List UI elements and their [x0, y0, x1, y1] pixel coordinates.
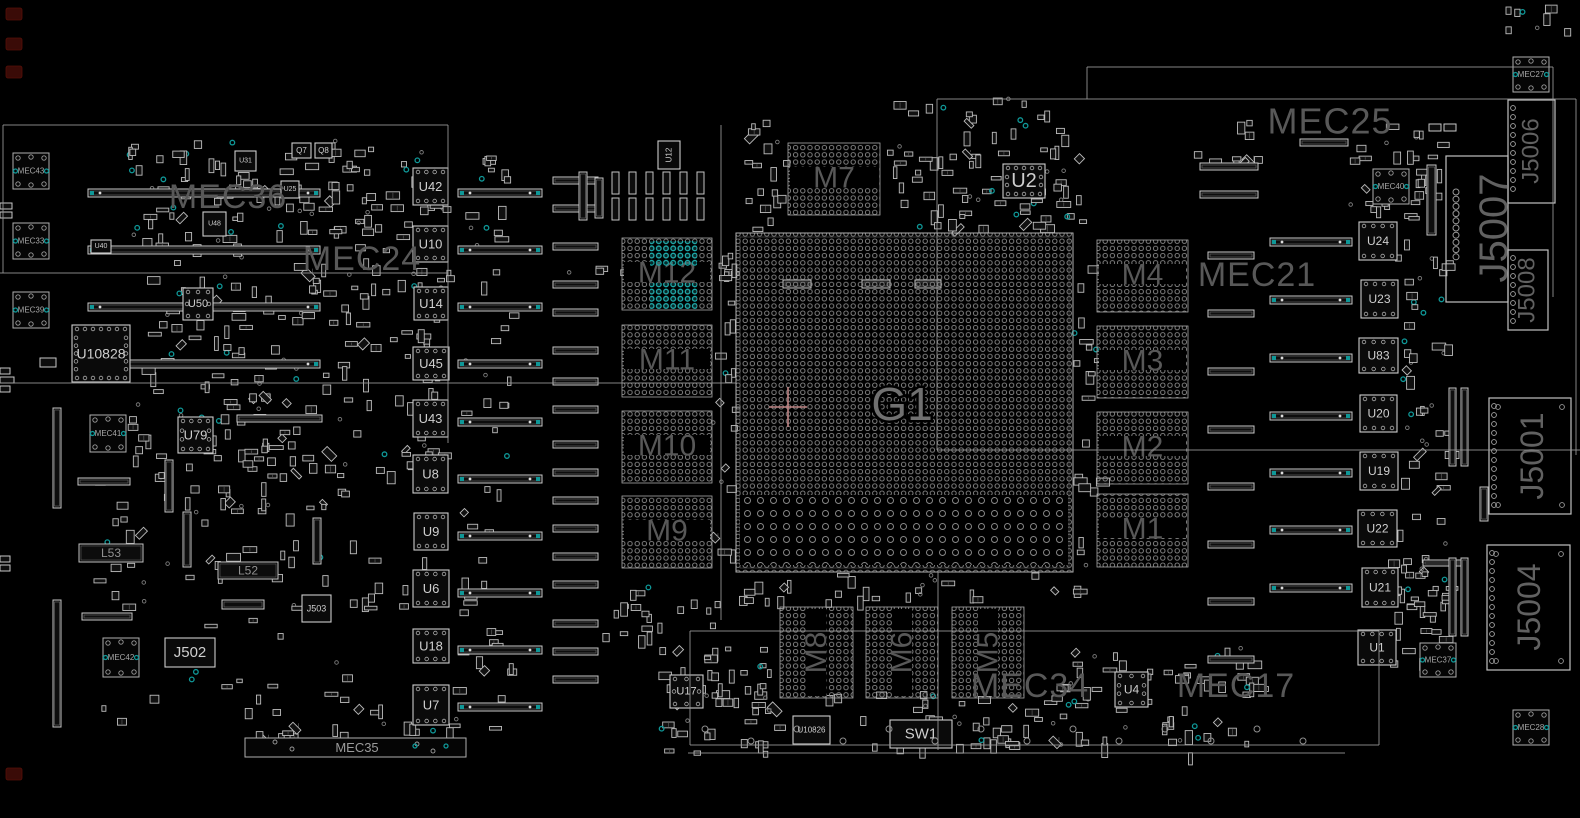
fiducial-MEC33[interactable]: MEC33: [13, 223, 49, 259]
slot-connector-vertical[interactable]: [1461, 388, 1468, 466]
slot-connector[interactable]: [458, 475, 542, 483]
slot-connector[interactable]: [237, 415, 322, 422]
slot-connector[interactable]: [1270, 469, 1352, 477]
slot-connector[interactable]: [1444, 124, 1456, 131]
region-label-MEC17: MEC17: [1177, 667, 1295, 705]
slot-connector[interactable]: [553, 281, 598, 288]
label-U31: U31: [239, 158, 252, 165]
slot-connector[interactable]: [553, 581, 598, 588]
label-J5004: J5004: [1511, 563, 1547, 650]
slot-connector[interactable]: [1208, 656, 1254, 663]
label-MEC41: MEC41: [95, 429, 122, 438]
label-U10828: U10828: [76, 346, 125, 362]
fiducial-MEC28[interactable]: MEC28: [1513, 710, 1549, 745]
slot-connector-vertical[interactable]: [1449, 558, 1456, 636]
label-U12: U12: [665, 147, 674, 162]
label-MEC39: MEC39: [18, 306, 45, 315]
bga-M3[interactable]: M3: [1097, 326, 1188, 398]
label-J5006: J5006: [1518, 118, 1545, 183]
slot-connector[interactable]: [458, 246, 542, 254]
label-M1: M1: [1122, 513, 1164, 546]
slot-connector[interactable]: [553, 620, 598, 627]
slot-connector[interactable]: [1208, 426, 1254, 433]
component-Q8[interactable]: Q8: [315, 143, 332, 158]
fiducial-MEC43[interactable]: MEC43: [13, 153, 49, 189]
slot-connector-vertical[interactable]: [612, 172, 619, 194]
slot-connector[interactable]: [458, 303, 542, 311]
label-M2: M2: [1122, 431, 1164, 464]
slot-connector[interactable]: [1208, 483, 1254, 490]
slot-connector[interactable]: [553, 309, 598, 316]
component-U45[interactable]: U45: [413, 347, 449, 380]
label-M7: M7: [813, 162, 855, 195]
bga-G1[interactable]: G1: [736, 233, 1073, 572]
slot-connector[interactable]: [458, 532, 542, 540]
component-U9[interactable]: U9: [414, 513, 448, 550]
label-U10: U10: [419, 237, 443, 252]
label-MEC40: MEC40: [1378, 182, 1405, 191]
region-label-MEC34: MEC34: [971, 667, 1089, 705]
label-J5007: J5007: [1472, 174, 1516, 283]
label-J502: J502: [174, 644, 207, 661]
corner-mark-icon: [6, 768, 22, 780]
slot-connector-vertical[interactable]: [680, 172, 687, 194]
label-Q7: Q7: [296, 146, 307, 155]
component-U2[interactable]: U2: [1003, 164, 1045, 198]
component-U1[interactable]: U1: [1358, 630, 1396, 665]
region-label-MEC25: MEC25: [1267, 101, 1392, 142]
slot-connector[interactable]: [1200, 163, 1258, 170]
label-M4: M4: [1122, 259, 1164, 292]
slot-connector[interactable]: [0, 203, 12, 209]
component-U18[interactable]: U18: [413, 629, 449, 663]
slot-connector[interactable]: [553, 441, 598, 448]
bga-M9[interactable]: M9: [622, 496, 712, 568]
board-drawing: M12M11M10M9M7M4M3M2M1M8M6M5G1U42U10U14U4…: [0, 0, 1580, 818]
slot-connector[interactable]: [458, 646, 542, 654]
component-U79[interactable]: U79: [178, 417, 213, 453]
fiducial-MEC40[interactable]: MEC40: [1373, 169, 1409, 204]
label-U40: U40: [95, 243, 108, 250]
component-U23[interactable]: U23: [1361, 280, 1398, 318]
label-U20: U20: [1367, 407, 1389, 421]
label-MEC35: MEC35: [335, 740, 378, 755]
label-G1: G1: [871, 378, 932, 430]
slot-connector[interactable]: [1270, 354, 1352, 362]
slot-connector[interactable]: [0, 368, 10, 374]
label-L53: L53: [101, 546, 121, 560]
slot-connector-vertical[interactable]: [53, 600, 61, 727]
fiducial-MEC41[interactable]: MEC41: [90, 415, 126, 452]
slot-connector-vertical[interactable]: [1461, 558, 1468, 636]
slot-connector[interactable]: [458, 589, 542, 597]
label-U48: U48: [208, 221, 221, 228]
slot-connector[interactable]: [0, 212, 12, 218]
label-U14: U14: [419, 296, 443, 311]
slot-connector[interactable]: [553, 243, 598, 250]
slot-connector[interactable]: [0, 556, 10, 562]
component-U17[interactable]: U17: [670, 675, 703, 708]
slot-connector[interactable]: [553, 347, 598, 354]
fiducial-MEC39[interactable]: MEC39: [13, 292, 49, 328]
label-U17: U17: [676, 686, 696, 698]
slot-connector[interactable]: [1429, 124, 1441, 131]
slot-connector[interactable]: [82, 613, 132, 620]
component-U14[interactable]: U14: [414, 287, 448, 320]
label-M8: M8: [800, 632, 833, 674]
label-M10: M10: [638, 430, 696, 463]
label-U83: U83: [1367, 349, 1389, 363]
slot-connector[interactable]: [222, 600, 264, 609]
slot-connector[interactable]: [553, 406, 598, 413]
label-Q8: Q8: [318, 146, 329, 155]
bga-M4[interactable]: M4: [1097, 240, 1188, 312]
slot-connector-vertical[interactable]: [629, 198, 636, 220]
label-MEC42: MEC42: [108, 653, 135, 662]
slot-connector[interactable]: [1270, 412, 1352, 420]
slot-connector-vertical[interactable]: [579, 172, 587, 220]
region-label-MEC24: MEC24: [303, 240, 421, 278]
slot-connector[interactable]: [553, 525, 598, 532]
slot-connector-vertical[interactable]: [629, 172, 636, 194]
component-L53[interactable]: L53: [79, 544, 143, 562]
label-U1: U1: [1369, 641, 1385, 655]
label-U24: U24: [1367, 234, 1389, 248]
m12-highlight-region: [650, 283, 697, 309]
label-U45: U45: [419, 356, 443, 371]
fiducial-MEC37[interactable]: MEC37: [1420, 643, 1456, 677]
bga-M2[interactable]: M2: [1097, 412, 1188, 484]
component-U6[interactable]: U6: [413, 570, 449, 607]
slot-connector-vertical[interactable]: [183, 512, 191, 567]
slot-connector[interactable]: [553, 497, 598, 504]
label-U43: U43: [419, 411, 443, 426]
slot-connector[interactable]: [458, 360, 542, 368]
label-U23: U23: [1368, 292, 1390, 306]
slot-connector-vertical[interactable]: [1449, 388, 1456, 466]
slot-connector[interactable]: [1208, 310, 1254, 317]
component-U22[interactable]: U22: [1358, 510, 1397, 547]
component-U31[interactable]: U31: [235, 151, 256, 171]
region-label-MEC36: MEC36: [169, 178, 287, 216]
label-MEC37: MEC37: [1425, 656, 1452, 665]
bga-M7[interactable]: M7: [788, 143, 880, 215]
label-MEC43: MEC43: [18, 167, 45, 176]
label-U42: U42: [419, 179, 443, 194]
bga-M8[interactable]: M8: [780, 607, 853, 698]
slot-connector[interactable]: [1208, 541, 1254, 548]
label-M11: M11: [639, 344, 695, 377]
slot-connector[interactable]: [458, 418, 542, 426]
label-J5001: J5001: [1514, 412, 1550, 499]
label-U4: U4: [1124, 683, 1140, 697]
label-U18: U18: [419, 639, 443, 654]
component-U40[interactable]: U40: [91, 240, 111, 253]
corner-mark-icon: [6, 38, 22, 50]
label-U22: U22: [1366, 522, 1388, 536]
label-M6: M6: [886, 632, 919, 674]
slot-connector-vertical[interactable]: [646, 172, 653, 194]
boardview-canvas[interactable]: M12M11M10M9M7M4M3M2M1M8M6M5G1U42U10U14U4…: [0, 0, 1580, 818]
slot-connector[interactable]: [553, 553, 598, 560]
label-U79: U79: [184, 428, 208, 443]
component-U21[interactable]: U21: [1362, 568, 1398, 607]
component-Q7[interactable]: Q7: [292, 143, 311, 158]
slot-connector[interactable]: [458, 703, 542, 711]
label-MEC28: MEC28: [1518, 723, 1545, 732]
label-U21: U21: [1369, 581, 1391, 595]
component-U10826[interactable]: U10826: [793, 716, 830, 744]
slot-connector[interactable]: [1200, 191, 1258, 198]
slot-connector-vertical[interactable]: [697, 198, 704, 220]
label-U50: U50: [188, 298, 208, 310]
slot-connector-vertical[interactable]: [313, 518, 321, 564]
bga-M11[interactable]: M11: [622, 325, 712, 397]
slot-connector[interactable]: [553, 205, 598, 212]
label-MEC33: MEC33: [18, 237, 45, 246]
slot-connector[interactable]: [88, 246, 320, 254]
slot-connector[interactable]: [1208, 598, 1254, 605]
slot-connector-vertical[interactable]: [663, 198, 670, 220]
bga-M10[interactable]: M10: [622, 411, 712, 483]
bga-M1[interactable]: M1: [1097, 494, 1188, 567]
label-U2: U2: [1011, 170, 1037, 192]
component-U12[interactable]: U12: [658, 141, 680, 169]
label-MEC27: MEC27: [1518, 70, 1545, 79]
slot-connector[interactable]: [78, 478, 130, 485]
component-U83[interactable]: U83: [1359, 338, 1398, 373]
slot-connector[interactable]: [1270, 238, 1352, 246]
corner-mark-icon: [6, 66, 22, 78]
slot-connector-vertical[interactable]: [697, 172, 704, 194]
component-U4[interactable]: U4: [1115, 672, 1148, 707]
component-U43[interactable]: U43: [413, 400, 448, 437]
component-U10828[interactable]: U10828: [72, 325, 130, 382]
slot-connector-vertical[interactable]: [646, 198, 653, 220]
label-L52: L52: [238, 564, 258, 578]
slot-connector[interactable]: [553, 469, 598, 476]
component-U20[interactable]: U20: [1360, 395, 1397, 432]
component-U7[interactable]: U7: [413, 685, 449, 725]
component-U42[interactable]: U42: [413, 168, 448, 205]
slot-connector[interactable]: [1208, 368, 1254, 375]
label-J5008: J5008: [1514, 257, 1541, 322]
component-U8[interactable]: U8: [413, 455, 448, 493]
component-U24[interactable]: U24: [1359, 222, 1397, 260]
slot-connector-vertical[interactable]: [612, 198, 619, 220]
corner-mark-icon: [6, 8, 22, 20]
m12-highlight-region: [650, 241, 697, 266]
fiducial-MEC35[interactable]: MEC35: [245, 738, 466, 757]
slot-connector-vertical[interactable]: [53, 408, 61, 508]
slot-connector[interactable]: [553, 648, 598, 655]
component-J502[interactable]: J502: [165, 638, 215, 667]
slot-connector[interactable]: [553, 378, 598, 385]
slot-connector[interactable]: [40, 358, 56, 367]
label-J503: J503: [307, 604, 327, 614]
slot-connector[interactable]: [458, 189, 542, 197]
label-U9: U9: [423, 524, 440, 539]
region-label-MEC21: MEC21: [1198, 256, 1316, 294]
slot-connector-vertical[interactable]: [663, 172, 670, 194]
slot-connector-vertical[interactable]: [1427, 165, 1436, 235]
label-U6: U6: [423, 581, 440, 596]
bga-M6[interactable]: M6: [866, 607, 938, 698]
slot-connector[interactable]: [1423, 560, 1465, 566]
component-J503[interactable]: J503: [302, 595, 331, 622]
component-U19[interactable]: U19: [1360, 452, 1398, 490]
slot-connector[interactable]: [0, 377, 14, 383]
fiducial-MEC42[interactable]: MEC42: [103, 638, 139, 677]
label-U10826: U10826: [797, 726, 826, 735]
slot-connector[interactable]: [1270, 296, 1352, 304]
component-L52[interactable]: L52: [218, 562, 278, 579]
component-SW1[interactable]: SW1: [890, 720, 952, 748]
slot-connector[interactable]: [1270, 584, 1352, 592]
slot-connector-vertical[interactable]: [1480, 487, 1488, 521]
slot-connector-vertical[interactable]: [595, 178, 603, 218]
label-U19: U19: [1368, 464, 1390, 478]
slot-connector[interactable]: [1270, 526, 1352, 534]
slot-connector[interactable]: [553, 676, 598, 683]
slot-connector[interactable]: [0, 565, 10, 571]
label-M3: M3: [1122, 345, 1164, 378]
label-M9: M9: [646, 515, 688, 548]
slot-connector[interactable]: [0, 386, 10, 392]
fiducial-MEC27[interactable]: MEC27: [1513, 57, 1549, 92]
label-U7: U7: [423, 698, 440, 713]
slot-connector-vertical[interactable]: [680, 198, 687, 220]
slot-connector[interactable]: [553, 177, 598, 184]
slot-connector-vertical[interactable]: [165, 460, 173, 512]
label-U8: U8: [422, 467, 439, 482]
component-U50[interactable]: U50: [183, 288, 213, 320]
